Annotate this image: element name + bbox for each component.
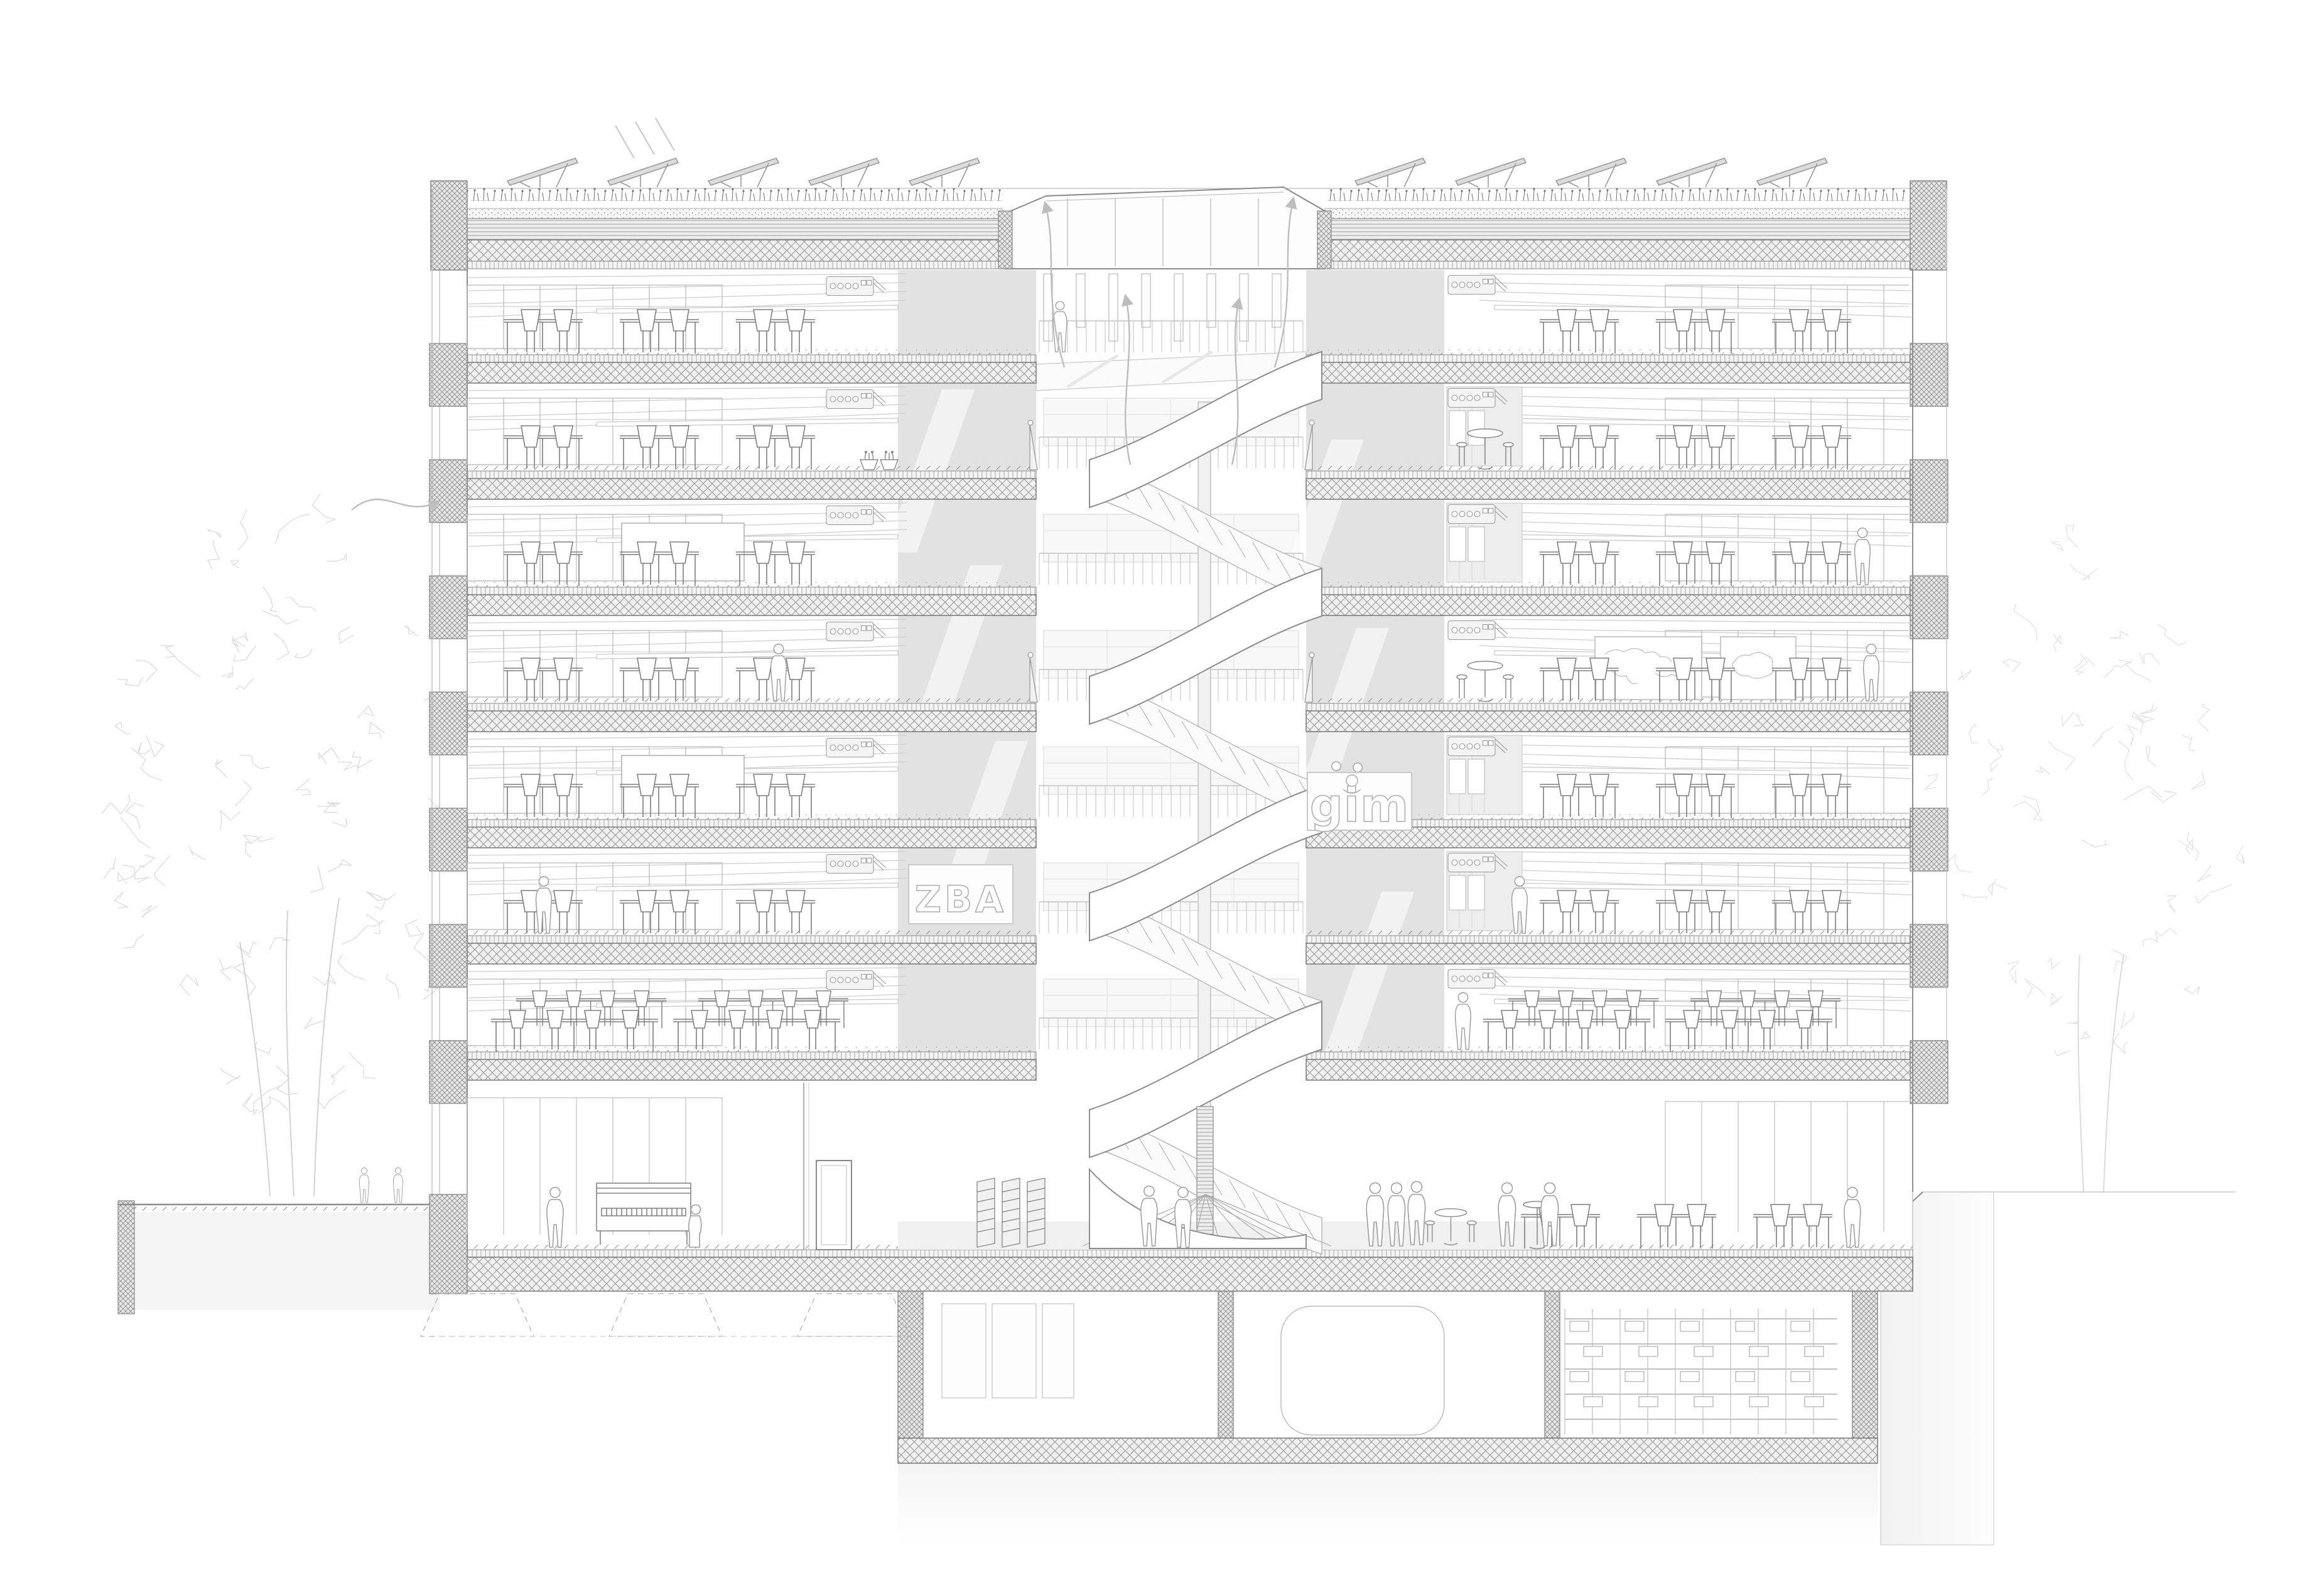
gim-sign-text: gim	[1310, 779, 1409, 833]
zba-sign-text: ZBA	[915, 878, 1007, 921]
zba-sign: ZBA	[909, 865, 1013, 924]
architectural-section-page: ZBA gim	[0, 0, 2324, 1570]
building-section-drawing: ZBA gim	[0, 0, 2324, 1570]
gim-sign: gim	[1307, 772, 1412, 833]
gim-person-dot-icon	[1346, 775, 1358, 786]
